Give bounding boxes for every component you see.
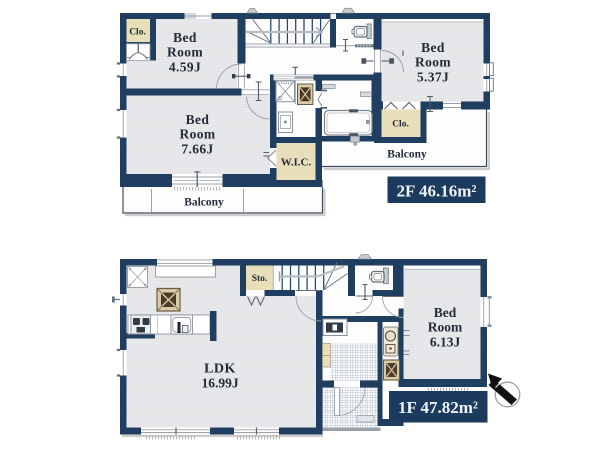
svg-text:2F 46.16m²: 2F 46.16m² [396,182,476,201]
svg-text:LDK: LDK [204,362,236,377]
svg-text:5.37J: 5.37J [417,70,449,85]
svg-text:Bed: Bed [186,112,210,127]
svg-text:W.I.C.: W.I.C. [281,157,312,169]
svg-text:Sto.: Sto. [252,274,268,284]
svg-text:Room: Room [428,320,463,335]
svg-text:Bed: Bed [421,40,445,55]
svg-text:1F 47.82m²: 1F 47.82m² [398,398,478,417]
svg-text:Balcony: Balcony [184,197,224,209]
svg-text:16.99J: 16.99J [201,376,238,391]
svg-text:Bed: Bed [434,305,457,320]
svg-text:7.66J: 7.66J [181,142,213,157]
svg-text:Clo.: Clo. [392,120,409,130]
svg-text:Balcony: Balcony [387,149,427,161]
svg-text:Clo.: Clo. [129,28,146,38]
svg-text:Room: Room [179,127,215,142]
svg-text:Room: Room [167,45,203,60]
svg-text:6.13J: 6.13J [430,335,461,350]
svg-text:4.59J: 4.59J [169,60,201,75]
svg-text:Bed: Bed [173,30,197,45]
svg-text:Room: Room [415,55,451,70]
